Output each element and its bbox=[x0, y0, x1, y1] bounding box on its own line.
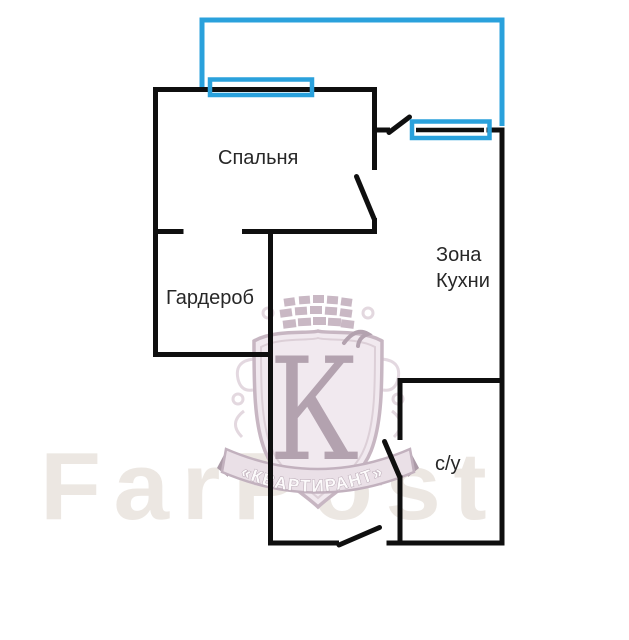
kitchen-zone-label-line2: Кухни bbox=[436, 270, 490, 292]
bathroom-door bbox=[385, 442, 400, 477]
kitchen-zone-label: ЗонаКухни bbox=[436, 242, 490, 294]
wardrobe-label: Гардероб bbox=[166, 285, 254, 311]
bedroom-label: Спальня bbox=[218, 145, 298, 171]
floorplan-linework bbox=[0, 0, 629, 640]
floorplan-image: FarPost bbox=[0, 0, 629, 640]
bathroom-label: с/у bbox=[435, 451, 461, 477]
entry-door bbox=[339, 528, 380, 546]
bedroom-door bbox=[357, 177, 375, 219]
balcony-door bbox=[389, 117, 410, 133]
balcony-outline bbox=[202, 20, 502, 126]
kitchen-zone-label-line1: Зона bbox=[436, 244, 481, 266]
